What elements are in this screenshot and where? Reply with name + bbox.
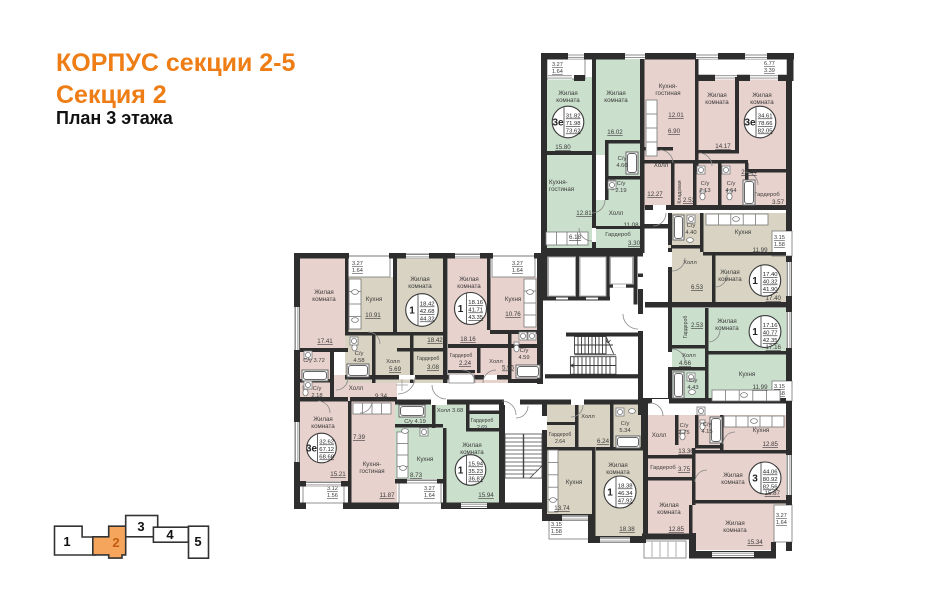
svg-text:2: 2 — [112, 535, 119, 550]
svg-text:1: 1 — [63, 534, 70, 549]
svg-text:5: 5 — [194, 534, 201, 549]
svg-text:4: 4 — [166, 527, 174, 542]
svg-text:3: 3 — [137, 519, 144, 534]
